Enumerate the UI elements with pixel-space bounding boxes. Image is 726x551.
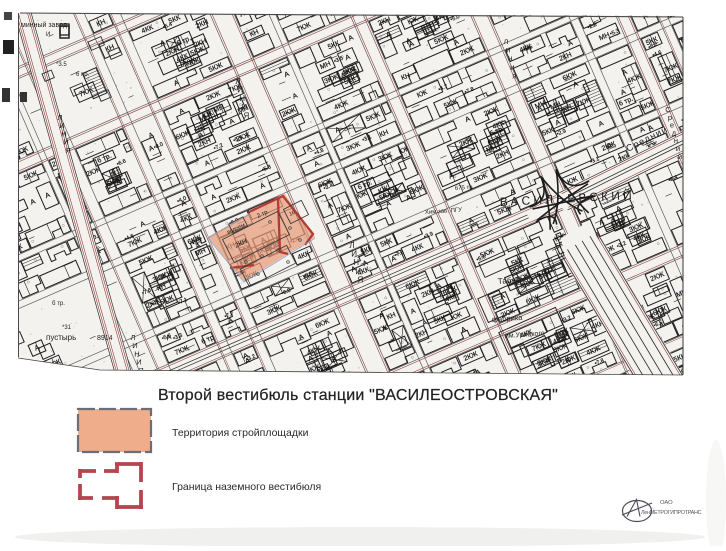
svg-text:А: А <box>564 436 571 444</box>
svg-text:КН: КН <box>274 0 285 8</box>
svg-text:КН: КН <box>686 21 697 31</box>
svg-text:•5.3: •5.3 <box>705 253 716 262</box>
svg-text:3КЖ: 3КЖ <box>629 0 646 7</box>
svg-text:5КЖ: 5КЖ <box>710 8 726 20</box>
svg-text:КЖ: КЖ <box>586 416 599 427</box>
svg-text:2КЖ: 2КЖ <box>579 407 596 419</box>
svg-text:А: А <box>686 379 693 387</box>
svg-text:*31: *31 <box>62 325 72 331</box>
svg-text:А: А <box>636 8 643 16</box>
svg-text:А: А <box>697 65 704 73</box>
svg-text:А: А <box>518 0 525 3</box>
svg-text:4КЖ: 4КЖ <box>686 36 703 48</box>
svg-text:4КК: 4КК <box>33 0 48 4</box>
svg-text:А: А <box>216 404 223 412</box>
svg-text:•5.5: •5.5 <box>707 373 718 382</box>
svg-text:А: А <box>679 1 686 9</box>
svg-text:•3.0: •3.0 <box>704 33 715 42</box>
svg-text:•6.7: •6.7 <box>708 166 719 175</box>
svg-text:Я: Я <box>65 146 70 155</box>
svg-text:КЖ: КЖ <box>608 381 621 392</box>
svg-text:3КЖ: 3КЖ <box>607 397 624 409</box>
svg-text:Второй вестибюль станции "ВАСИ: Второй вестибюль станции "ВАСИЛЕОСТРОВСК… <box>158 387 558 404</box>
svg-text:6 тр.: 6 тр. <box>690 62 706 74</box>
svg-text:5КК: 5КК <box>585 408 600 420</box>
svg-text:Я: Я <box>358 275 364 284</box>
svg-text:А: А <box>605 409 612 417</box>
svg-text:5КЖ: 5КЖ <box>508 0 525 5</box>
svg-text:А: А <box>235 408 242 416</box>
svg-text:6КЖ: 6КЖ <box>525 0 542 8</box>
svg-text:2КН: 2КН <box>695 367 710 379</box>
svg-text:5КК: 5КК <box>713 198 726 210</box>
svg-text:5КЖ: 5КЖ <box>0 295 10 307</box>
svg-text:6КЖ: 6КЖ <box>702 22 719 34</box>
svg-text:6 тр.: 6 тр. <box>504 0 520 8</box>
svg-text:*3.5: *3.5 <box>56 62 67 68</box>
svg-text:Я: Я <box>244 111 250 120</box>
svg-text:6 тр.: 6 тр. <box>694 37 710 49</box>
svg-text:ЛенМЕТРОГИПРОТРАНС: ЛенМЕТРОГИПРОТРАНС <box>641 510 702 516</box>
svg-text:6КЖ: 6КЖ <box>405 3 422 15</box>
svg-text:МН: МН <box>585 392 598 403</box>
svg-text:А: А <box>711 300 718 308</box>
svg-text:4КК: 4КК <box>521 0 536 11</box>
svg-text:6 тр.: 6 тр. <box>709 19 725 31</box>
svg-text:8914: 8914 <box>97 335 113 342</box>
svg-text:6 тр.: 6 тр. <box>697 150 713 162</box>
svg-text:КН: КН <box>568 423 579 433</box>
svg-text:А: А <box>704 343 711 351</box>
svg-text:5КЖ: 5КЖ <box>676 376 693 388</box>
svg-text:•7.6: •7.6 <box>682 109 693 118</box>
svg-text:КН: КН <box>3 234 14 244</box>
svg-text:пустырь: пустырь <box>46 333 76 342</box>
svg-text:КЖ: КЖ <box>721 288 726 299</box>
svg-text:4КК: 4КК <box>580 425 595 437</box>
svg-text:6КЖ: 6КЖ <box>695 42 712 54</box>
svg-text:А: А <box>594 439 601 447</box>
svg-text:5КЖ: 5КЖ <box>456 415 473 427</box>
svg-text:МН: МН <box>325 0 338 3</box>
svg-text:А: А <box>700 25 707 33</box>
svg-text:2КЖ: 2КЖ <box>291 0 308 5</box>
svg-text:А: А <box>718 202 725 210</box>
svg-text:4КЖ: 4КЖ <box>628 418 645 430</box>
svg-text:А: А <box>250 0 257 7</box>
svg-text:•6.7: •6.7 <box>299 0 310 7</box>
svg-text:й: й <box>678 152 682 161</box>
svg-text:6 пр.: 6 пр. <box>76 72 90 78</box>
svg-text:А: А <box>550 0 557 1</box>
svg-text:А: А <box>427 418 434 426</box>
svg-text:А: А <box>566 449 573 457</box>
svg-text:4КК: 4КК <box>157 0 172 2</box>
svg-text:МН: МН <box>703 388 716 399</box>
svg-text:б тр.: б тр. <box>52 301 65 307</box>
svg-text:•2.2: •2.2 <box>582 439 593 448</box>
svg-text:Территория стройплощадки: Территория стройплощадки <box>172 427 309 439</box>
svg-text:А: А <box>570 418 577 426</box>
svg-text:А: А <box>521 5 528 13</box>
svg-text:А: А <box>8 240 15 248</box>
svg-text:я: я <box>512 71 516 80</box>
svg-text:Граница наземного вестибюля: Граница наземного вестибюля <box>172 481 321 493</box>
svg-text:А: А <box>667 0 674 6</box>
svg-text:ОАО: ОАО <box>660 500 673 506</box>
svg-text:И: И <box>46 32 50 38</box>
svg-text:•2.3: •2.3 <box>449 377 460 386</box>
svg-text:4КК: 4КК <box>0 185 3 197</box>
svg-text:•5.9: •5.9 <box>325 0 336 7</box>
